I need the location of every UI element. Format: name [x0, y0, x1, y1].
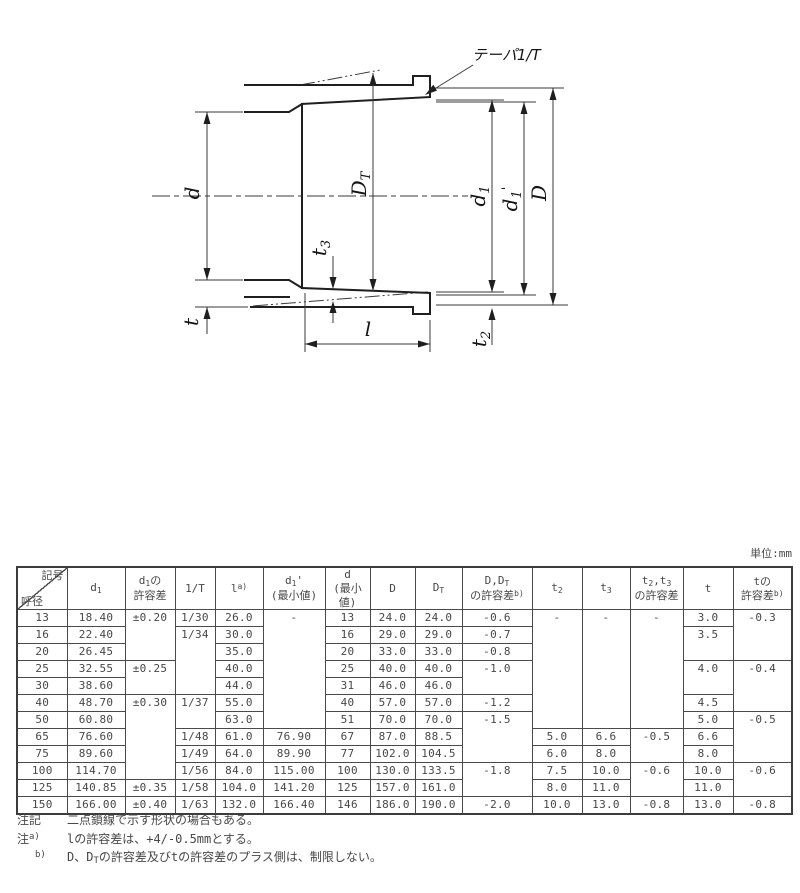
arrow-d1-prime-bottom	[521, 283, 528, 295]
table-cell: 24.0	[415, 610, 462, 627]
col-header-d1-tol: d1の 許容差	[125, 567, 175, 610]
table-cell: 46.0	[415, 678, 462, 695]
outline-bead-bottom	[413, 307, 430, 314]
arrow-D-top	[550, 88, 557, 100]
table-cell: 125	[17, 780, 67, 797]
table-cell: 5.0	[683, 712, 733, 729]
note-a-label: 注a)	[17, 829, 67, 848]
dim-label-l: l	[365, 317, 371, 341]
table-cell: -1.0	[462, 661, 532, 695]
ext-lines-right-bottom	[436, 292, 568, 305]
table-cell: 57.0	[370, 695, 415, 712]
table-cell: 40	[17, 695, 67, 712]
spec-sheet-page: d t DT d1 d1' D t2 t3	[0, 0, 800, 893]
table-cell: 61.0	[215, 729, 263, 746]
table-cell: 140.85	[67, 780, 125, 797]
table-cell: 60.80	[67, 712, 125, 729]
table-cell: -	[582, 610, 630, 729]
table-cell: 3.5	[683, 627, 733, 661]
note-a-text: lの許容差は、+4/-0.5mmとする。	[67, 832, 259, 846]
taper-label: テーパ1/T	[472, 46, 542, 64]
table-cell: 65	[17, 729, 67, 746]
outline-bead-top	[413, 76, 430, 85]
table-cell: 87.0	[370, 729, 415, 746]
table-cell: 51	[325, 712, 370, 729]
table-cell: -0.5	[733, 712, 792, 763]
arrow-t2-down	[489, 280, 496, 292]
table-cell: 63.0	[215, 712, 263, 729]
table-cell: 40.0	[415, 661, 462, 678]
table-cell: 16	[17, 627, 67, 644]
table-cell: 16	[325, 627, 370, 644]
table-cell: 100	[325, 763, 370, 780]
table-cell: 7.5	[532, 763, 582, 780]
table-cell: 141.20	[263, 780, 325, 797]
arrow-D-bottom	[550, 293, 557, 305]
table-cell: 6.6	[683, 729, 733, 746]
note-b-text: D、DTの許容差及びtの許容差のプラス側は、制限しない。	[67, 850, 382, 864]
col-header-t: t	[683, 567, 733, 610]
table-cell: 18.40	[67, 610, 125, 627]
table-cell: 67	[325, 729, 370, 746]
arrow-d-bottom	[204, 268, 211, 280]
table-cell: 64.0	[215, 746, 263, 763]
table-cell: 13	[17, 610, 67, 627]
table-cell: 104.5	[415, 746, 462, 763]
corner-label-nominal: 呼径	[21, 595, 43, 609]
dim-label-d1: d1	[466, 185, 493, 206]
outline-pipe-inner-top	[245, 104, 302, 112]
table-cell: -0.3	[733, 610, 792, 661]
col-header-t-tol: tの 許容差b)	[733, 567, 792, 610]
col-header-t2: t2	[532, 567, 582, 610]
dim-label-t: t	[179, 317, 203, 326]
table-cell: 11.0	[582, 780, 630, 797]
note-a: 注a)lの許容差は、+4/-0.5mmとする。	[17, 829, 382, 848]
table-cell: 50	[17, 712, 67, 729]
table-cell: 25	[325, 661, 370, 678]
spec-table: 記号 呼径 d1 d1の 許容差 1/T la) d1' (最小値) d (最小…	[16, 566, 793, 815]
table-cell: 38.60	[67, 678, 125, 695]
arrow-t	[204, 307, 211, 319]
arrow-t3-down	[330, 277, 337, 289]
outline-inner-taper-bottom	[302, 288, 430, 293]
table-cell: 25	[17, 661, 67, 678]
table-cell: 26.45	[67, 644, 125, 661]
table-cell: 40.0	[370, 661, 415, 678]
table-cell: 46.0	[370, 678, 415, 695]
phantom-taper-top	[300, 70, 380, 85]
col-header-DDT-tol: D,DT の許容差b)	[462, 567, 532, 610]
table-cell: 55.0	[215, 695, 263, 712]
dim-label-DT: DT	[347, 170, 374, 197]
table-cell: -	[532, 610, 582, 729]
table-cell: 70.0	[370, 712, 415, 729]
table-cell: 157.0	[370, 780, 415, 797]
arrow-t2-up	[489, 308, 496, 320]
table-cell: 1/37	[175, 695, 215, 729]
table-cell: 76.60	[67, 729, 125, 746]
col-header-d-min: d (最小値)	[325, 567, 370, 610]
note-remark-text: 二点鎖線で示す形状の場合もある。	[67, 813, 259, 827]
col-header-taper: 1/T	[175, 567, 215, 610]
table-cell: -0.6	[462, 610, 532, 627]
col-header-t2t3-tol: t2,t3 の許容差	[630, 567, 683, 610]
outline-pipe-inner-bottom	[245, 280, 302, 288]
table-cell: 115.00	[263, 763, 325, 780]
arrow-DT-top	[370, 73, 377, 85]
table-cell: 1/48	[175, 729, 215, 746]
table-cell: 31	[325, 678, 370, 695]
table-cell: 89.90	[263, 746, 325, 763]
table-cell: -	[263, 610, 325, 729]
ext-lines-left	[195, 112, 248, 307]
table-cell: 10.0	[683, 763, 733, 780]
table-cell: 88.5	[415, 729, 462, 746]
table-cell: 13.0	[582, 797, 630, 815]
table-cell: ±0.35	[125, 780, 175, 797]
table-cell: -0.8	[462, 644, 532, 661]
table-cell: ±0.25	[125, 661, 175, 695]
table-cell: 20	[17, 644, 67, 661]
table-cell: 1/58	[175, 780, 215, 797]
table-cell: -0.6	[630, 763, 683, 797]
table-cell: -0.7	[462, 627, 532, 644]
table-cell: 125	[325, 780, 370, 797]
table-cell: 133.5	[415, 763, 462, 780]
table-cell: 22.40	[67, 627, 125, 644]
table-cell: -1.8	[462, 763, 532, 797]
table-cell: 40.0	[215, 661, 263, 678]
table-cell: -1.5	[462, 712, 532, 763]
table-cell: -0.5	[630, 729, 683, 763]
arrow-l-right	[418, 341, 430, 348]
table-cell: 190.0	[415, 797, 462, 815]
table-cell: 130.0	[370, 763, 415, 780]
table-cell: 33.0	[370, 644, 415, 661]
table-cell: 161.0	[415, 780, 462, 797]
table-cell: 1/30	[175, 610, 215, 627]
table-cell: 13	[325, 610, 370, 627]
note-b: b)D、DTの許容差及びtの許容差のプラス側は、制限しない。	[17, 847, 382, 870]
arrow-DT-bottom	[370, 279, 377, 291]
table-cell: 20	[325, 644, 370, 661]
table-cell: 102.0	[370, 746, 415, 763]
table-cell: 48.70	[67, 695, 125, 712]
table-cell: 29.0	[370, 627, 415, 644]
table-cell: 13.0	[683, 797, 733, 815]
note-b-label: b)	[17, 847, 67, 866]
table-cell: 30.0	[215, 627, 263, 644]
unit-label: 単位:mm	[16, 545, 792, 561]
table-cell: 57.0	[415, 695, 462, 712]
table-cell: 4.0	[683, 661, 733, 695]
table-cell: -2.0	[462, 797, 532, 815]
dim-label-d1-prime: d1'	[498, 187, 525, 212]
arrow-d-top	[204, 112, 211, 124]
note-remark-label: 注記	[17, 812, 67, 829]
table-cell: 44.0	[215, 678, 263, 695]
col-header-d1-prime: d1' (最小値)	[263, 567, 325, 610]
header-row: 記号 呼径 d1 d1の 許容差 1/T la) d1' (最小値) d (最小…	[17, 567, 792, 610]
table-cell: 33.0	[415, 644, 462, 661]
table-cell: ±0.20	[125, 610, 175, 661]
table-cell: 76.90	[263, 729, 325, 746]
col-header-corner: 記号 呼径	[17, 567, 67, 610]
table-cell: 8.0	[683, 746, 733, 763]
table-cell: 104.0	[215, 780, 263, 797]
col-header-DT: DT	[415, 567, 462, 610]
table-cell: 11.0	[683, 780, 733, 797]
table-cell: 89.60	[67, 746, 125, 763]
table-cell: -0.8	[733, 797, 792, 815]
col-header-l: la)	[215, 567, 263, 610]
table-cell: 84.0	[215, 763, 263, 780]
table-cell: 10.0	[532, 797, 582, 815]
table-cell: 24.0	[370, 610, 415, 627]
table-cell: 1/34	[175, 627, 215, 695]
table-cell: 3.0	[683, 610, 733, 627]
table-cell: -1.2	[462, 695, 532, 712]
col-header-t3: t3	[582, 567, 630, 610]
table-cell: 6.6	[582, 729, 630, 746]
table-cell: 32.55	[67, 661, 125, 678]
table-cell: 29.0	[415, 627, 462, 644]
table-cell: 75	[17, 746, 67, 763]
col-header-D: D	[370, 567, 415, 610]
dim-label-d: d	[180, 187, 204, 200]
ext-lines-right-top	[434, 88, 564, 102]
table-cell: 1/49	[175, 746, 215, 763]
note-remark: 注記二点鎖線で示す形状の場合もある。	[17, 812, 382, 829]
table-cell: -	[630, 610, 683, 729]
table-cell: 26.0	[215, 610, 263, 627]
arrow-l-left	[305, 341, 317, 348]
table-cell: 5.0	[532, 729, 582, 746]
table-cell: 35.0	[215, 644, 263, 661]
table-cell: 4.5	[683, 695, 733, 712]
table-cell: 1/56	[175, 763, 215, 780]
table-cell: 70.0	[415, 712, 462, 729]
outline-inner-taper-top	[302, 97, 430, 104]
phantom-taper-bottom	[253, 292, 428, 306]
table-cell: 6.0	[532, 746, 582, 763]
corner-label-symbol: 記号	[42, 569, 64, 583]
arrow-d1-prime-top	[521, 102, 528, 114]
table-cell: 100	[17, 763, 67, 780]
col-header-d1: d1	[67, 567, 125, 610]
table-cell: 40	[325, 695, 370, 712]
dim-label-D: D	[527, 185, 551, 202]
table-cell: 8.0	[532, 780, 582, 797]
dim-label-t3: t3	[307, 240, 334, 256]
table-cell: 30	[17, 678, 67, 695]
table-cell: -0.4	[733, 661, 792, 712]
notes: 注記二点鎖線で示す形状の場合もある。 注a)lの許容差は、+4/-0.5mmとす…	[17, 812, 382, 870]
table-cell: 10.0	[582, 763, 630, 780]
technical-drawing: d t DT d1 d1' D t2 t3	[0, 0, 800, 460]
table-cell: 8.0	[582, 746, 630, 763]
table-cell: -0.8	[630, 797, 683, 815]
table-cell: ±0.30	[125, 695, 175, 780]
dim-label-t2: t2	[467, 331, 494, 347]
spec-table-body: 1318.40±0.201/3026.0-1324.024.0-0.6---3.…	[17, 610, 792, 815]
table-cell: 114.70	[67, 763, 125, 780]
table-row: 1318.40±0.201/3026.0-1324.024.0-0.6---3.…	[17, 610, 792, 627]
table-cell: 77	[325, 746, 370, 763]
table-cell: -0.6	[733, 763, 792, 797]
